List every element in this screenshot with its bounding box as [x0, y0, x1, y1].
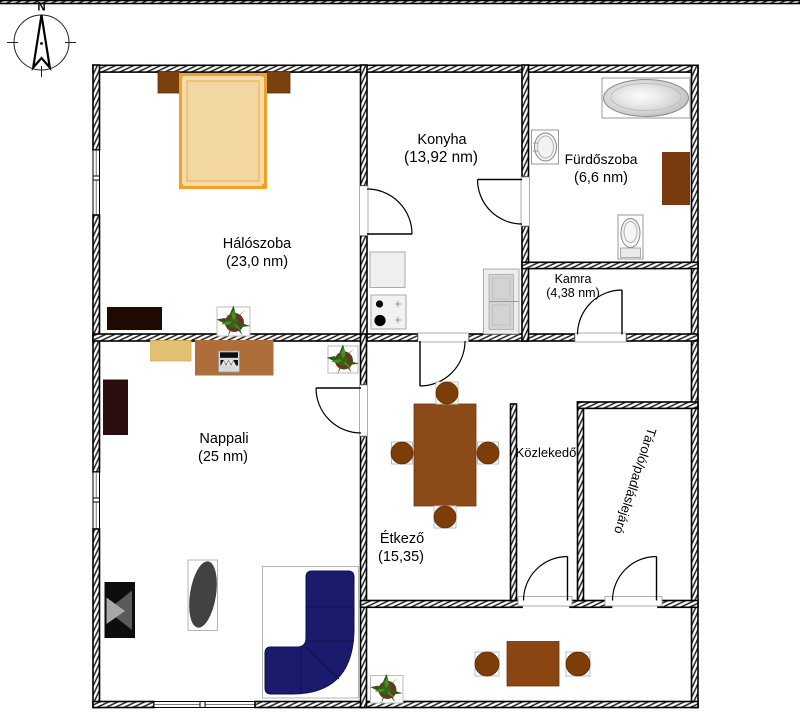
svg-text:(23,0 nm): (23,0 nm) [226, 254, 288, 270]
svg-text:Konyha: Konyha [417, 132, 467, 148]
svg-text:(25 nm): (25 nm) [198, 449, 248, 465]
svg-text:(15,35): (15,35) [378, 549, 424, 565]
svg-text:(13,92 nm): (13,92 nm) [404, 149, 478, 166]
svg-text:Étkező: Étkező [380, 530, 424, 547]
svg-text:Közlekedő: Közlekedő [516, 445, 577, 460]
svg-text:Fürdőszoba: Fürdőszoba [565, 152, 638, 167]
svg-text:Hálószoba: Hálószoba [223, 236, 292, 252]
svg-text:(4,38 nm): (4,38 nm) [546, 286, 600, 300]
svg-text:N: N [37, 2, 45, 14]
svg-text:Nappali: Nappali [199, 431, 248, 447]
svg-text:Kamra: Kamra [555, 272, 592, 286]
svg-text:(6,6 nm): (6,6 nm) [574, 170, 628, 186]
